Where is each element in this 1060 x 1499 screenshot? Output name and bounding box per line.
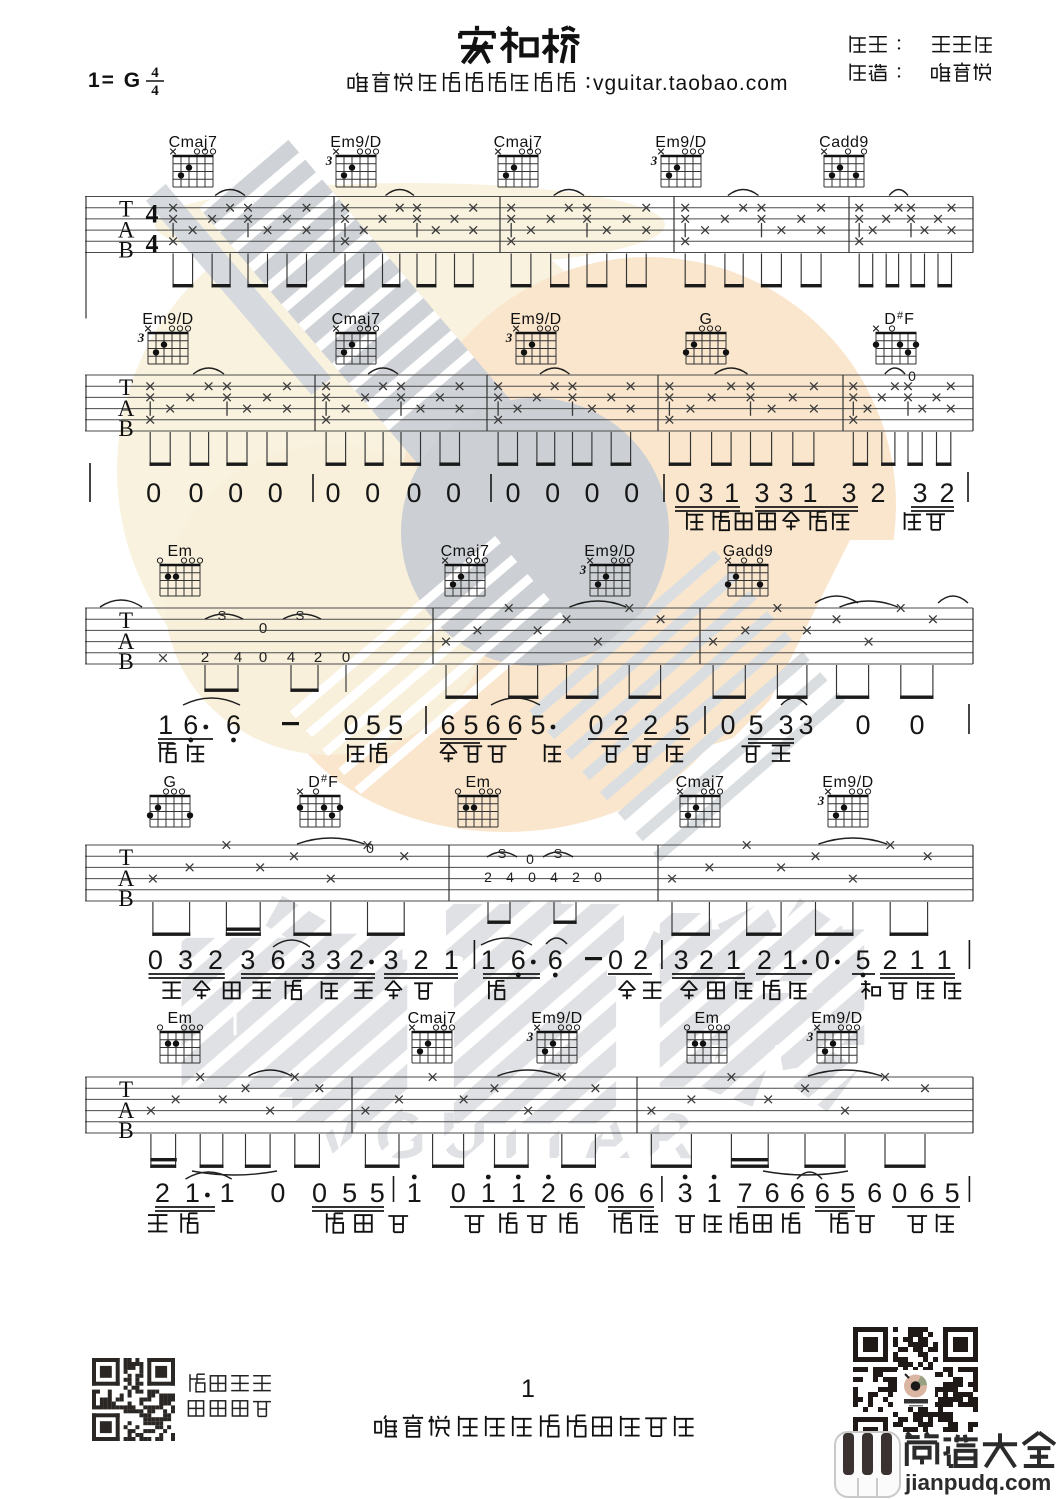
svg-text:Em9/D: Em9/D bbox=[531, 1010, 582, 1027]
svg-text:5: 5 bbox=[748, 710, 763, 740]
svg-text:Em: Em bbox=[168, 1010, 193, 1027]
svg-text:5: 5 bbox=[855, 945, 870, 975]
svg-text:5: 5 bbox=[388, 710, 403, 740]
svg-text:6: 6 bbox=[919, 1178, 934, 1208]
svg-text:Cmaj7: Cmaj7 bbox=[494, 134, 543, 151]
svg-text:3: 3 bbox=[579, 562, 587, 577]
svg-text:Em9/D: Em9/D bbox=[811, 1010, 862, 1027]
svg-text:0: 0 bbox=[815, 945, 830, 975]
svg-text:Cmaj7: Cmaj7 bbox=[408, 1010, 457, 1027]
svg-text:2: 2 bbox=[201, 649, 209, 666]
svg-text:1: 1 bbox=[481, 945, 496, 975]
svg-text:Em9/D: Em9/D bbox=[142, 311, 193, 328]
svg-text:D: D bbox=[308, 774, 320, 791]
svg-text:Em9/D: Em9/D bbox=[655, 134, 706, 151]
svg-text:5: 5 bbox=[370, 1178, 385, 1208]
svg-text:vguitar.taobao.com: vguitar.taobao.com bbox=[593, 72, 788, 95]
svg-text:1: 1 bbox=[444, 945, 459, 975]
svg-text:2: 2 bbox=[572, 869, 580, 885]
svg-text:1: 1 bbox=[707, 1178, 722, 1208]
svg-text:2: 2 bbox=[484, 869, 492, 885]
svg-text:0: 0 bbox=[720, 710, 735, 740]
svg-text:5: 5 bbox=[366, 710, 381, 740]
svg-text:1: 1 bbox=[726, 945, 741, 975]
svg-text:0: 0 bbox=[908, 368, 916, 384]
svg-text:1: 1 bbox=[910, 945, 925, 975]
svg-text:4: 4 bbox=[550, 869, 558, 885]
svg-text:3: 3 bbox=[798, 710, 813, 740]
svg-text:1: 1 bbox=[802, 478, 817, 508]
svg-text:6: 6 bbox=[507, 710, 522, 740]
svg-text:2: 2 bbox=[208, 945, 223, 975]
svg-text:Em9/D: Em9/D bbox=[822, 774, 873, 791]
svg-text:3: 3 bbox=[178, 945, 193, 975]
svg-text:4: 4 bbox=[151, 83, 159, 99]
svg-text:6: 6 bbox=[440, 710, 455, 740]
svg-text:3: 3 bbox=[817, 793, 825, 808]
svg-text:0: 0 bbox=[406, 478, 421, 508]
svg-text:Cmaj7: Cmaj7 bbox=[169, 134, 218, 151]
svg-text:S: S bbox=[296, 608, 305, 623]
svg-text:6: 6 bbox=[790, 1178, 805, 1208]
svg-text:1: 1 bbox=[937, 945, 952, 975]
svg-text:4: 4 bbox=[287, 649, 295, 666]
svg-text:6: 6 bbox=[183, 710, 198, 740]
svg-text:4: 4 bbox=[146, 230, 159, 259]
svg-text:0: 0 bbox=[268, 478, 283, 508]
svg-text:3: 3 bbox=[650, 153, 658, 168]
svg-text:2: 2 bbox=[699, 945, 714, 975]
svg-text:0: 0 bbox=[584, 478, 599, 508]
svg-text:1: 1 bbox=[511, 1178, 526, 1208]
svg-text:3: 3 bbox=[778, 478, 793, 508]
svg-text:3: 3 bbox=[674, 945, 689, 975]
svg-text:3: 3 bbox=[300, 945, 315, 975]
svg-text:0: 0 bbox=[343, 710, 358, 740]
svg-text:F: F bbox=[328, 774, 338, 791]
svg-text:6: 6 bbox=[270, 945, 285, 975]
svg-text:2: 2 bbox=[870, 478, 885, 508]
svg-text:3: 3 bbox=[778, 710, 793, 740]
svg-text:2: 2 bbox=[882, 945, 897, 975]
svg-text:2: 2 bbox=[613, 710, 628, 740]
svg-text:3: 3 bbox=[698, 478, 713, 508]
svg-text:5: 5 bbox=[840, 1178, 855, 1208]
svg-text:S: S bbox=[498, 846, 507, 861]
svg-text:4: 4 bbox=[146, 200, 159, 229]
svg-text:0: 0 bbox=[446, 478, 461, 508]
svg-text:3: 3 bbox=[754, 478, 769, 508]
svg-text:3: 3 bbox=[912, 478, 927, 508]
svg-text:0: 0 bbox=[259, 620, 267, 637]
svg-text:Em: Em bbox=[466, 774, 491, 791]
svg-text:2: 2 bbox=[757, 945, 772, 975]
svg-text:6: 6 bbox=[815, 1178, 830, 1208]
svg-text:B: B bbox=[118, 1118, 133, 1143]
svg-text:0: 0 bbox=[545, 478, 560, 508]
svg-text:Em: Em bbox=[168, 543, 193, 560]
svg-text:2: 2 bbox=[633, 945, 648, 975]
svg-text:6: 6 bbox=[765, 1178, 780, 1208]
svg-text:5: 5 bbox=[530, 710, 545, 740]
svg-text:1: 1 bbox=[782, 945, 797, 975]
svg-text:3: 3 bbox=[240, 945, 255, 975]
svg-text:0: 0 bbox=[259, 649, 267, 666]
svg-text:0: 0 bbox=[312, 1178, 327, 1208]
svg-text:4: 4 bbox=[151, 65, 159, 81]
svg-text:6: 6 bbox=[569, 1178, 584, 1208]
svg-text:3: 3 bbox=[678, 1178, 693, 1208]
svg-text:B: B bbox=[118, 238, 133, 263]
svg-text:0: 0 bbox=[342, 649, 350, 666]
svg-text:B: B bbox=[118, 416, 133, 441]
svg-text:7: 7 bbox=[737, 1178, 752, 1208]
svg-text:S: S bbox=[554, 846, 563, 861]
svg-text:Cmaj7: Cmaj7 bbox=[676, 774, 725, 791]
svg-text:2: 2 bbox=[643, 710, 658, 740]
svg-text:0: 0 bbox=[325, 478, 340, 508]
svg-text:3: 3 bbox=[505, 330, 513, 345]
svg-text:0: 0 bbox=[365, 478, 380, 508]
svg-text:2: 2 bbox=[413, 945, 428, 975]
svg-text:1: 1 bbox=[185, 1178, 200, 1208]
svg-text:3: 3 bbox=[326, 945, 341, 975]
svg-text:0: 0 bbox=[451, 1178, 466, 1208]
svg-text:0: 0 bbox=[188, 478, 203, 508]
svg-text:0: 0 bbox=[594, 869, 602, 885]
svg-text:6: 6 bbox=[867, 1178, 882, 1208]
svg-text:D: D bbox=[884, 311, 896, 328]
svg-text:1: 1 bbox=[407, 1178, 422, 1208]
svg-text:3: 3 bbox=[137, 330, 145, 345]
svg-text:Cmaj7: Cmaj7 bbox=[332, 311, 381, 328]
svg-text:B: B bbox=[118, 886, 133, 911]
svg-text:0: 0 bbox=[366, 840, 374, 856]
svg-text:0: 0 bbox=[608, 945, 623, 975]
svg-text:1: 1 bbox=[158, 710, 173, 740]
svg-text:0: 0 bbox=[228, 478, 243, 508]
svg-text:3: 3 bbox=[383, 945, 398, 975]
svg-text:Em9/D: Em9/D bbox=[584, 543, 635, 560]
svg-text:0: 0 bbox=[505, 478, 520, 508]
svg-text:6: 6 bbox=[610, 1178, 625, 1208]
svg-text:2: 2 bbox=[314, 649, 322, 666]
svg-text:0: 0 bbox=[892, 1178, 907, 1208]
svg-text:Cadd9: Cadd9 bbox=[819, 134, 869, 151]
svg-text:0: 0 bbox=[624, 478, 639, 508]
svg-text:6: 6 bbox=[511, 945, 526, 975]
svg-text:F: F bbox=[904, 311, 914, 328]
svg-text:1= G: 1= G bbox=[88, 69, 142, 92]
svg-text:0: 0 bbox=[526, 851, 534, 867]
svg-text:6: 6 bbox=[639, 1178, 654, 1208]
svg-text:1: 1 bbox=[521, 1375, 535, 1403]
svg-text:0: 0 bbox=[146, 478, 161, 508]
svg-text:1: 1 bbox=[481, 1178, 496, 1208]
svg-text:5: 5 bbox=[463, 710, 478, 740]
svg-text:0: 0 bbox=[270, 1178, 285, 1208]
svg-text:Em9/D: Em9/D bbox=[510, 311, 561, 328]
svg-text:0: 0 bbox=[588, 710, 603, 740]
svg-text:0: 0 bbox=[148, 945, 163, 975]
svg-text:0: 0 bbox=[909, 710, 924, 740]
svg-text:B: B bbox=[118, 649, 133, 674]
svg-text:S: S bbox=[218, 608, 227, 623]
svg-text:4: 4 bbox=[506, 869, 514, 885]
svg-text:6: 6 bbox=[548, 945, 563, 975]
svg-text:5: 5 bbox=[945, 1178, 960, 1208]
svg-text:2: 2 bbox=[155, 1178, 170, 1208]
svg-text:2: 2 bbox=[939, 478, 954, 508]
svg-text:0: 0 bbox=[528, 869, 536, 885]
svg-text:3: 3 bbox=[806, 1029, 814, 1044]
svg-text:#: # bbox=[897, 310, 904, 322]
svg-text:2: 2 bbox=[349, 945, 364, 975]
svg-text:jianpudq.com: jianpudq.com bbox=[904, 1470, 1051, 1495]
svg-text:6: 6 bbox=[485, 710, 500, 740]
svg-text:3: 3 bbox=[526, 1029, 534, 1044]
svg-text:#: # bbox=[321, 773, 328, 785]
svg-text:6: 6 bbox=[226, 710, 241, 740]
svg-text:Em: Em bbox=[695, 1010, 720, 1027]
svg-text:0: 0 bbox=[855, 710, 870, 740]
svg-text:3: 3 bbox=[841, 478, 856, 508]
svg-text:3: 3 bbox=[325, 153, 333, 168]
svg-text:0: 0 bbox=[675, 478, 690, 508]
svg-text:Cmaj7: Cmaj7 bbox=[441, 543, 490, 560]
svg-text:5: 5 bbox=[674, 710, 689, 740]
svg-text:0: 0 bbox=[594, 1178, 609, 1208]
svg-text:5: 5 bbox=[342, 1178, 357, 1208]
svg-text:4: 4 bbox=[234, 649, 242, 666]
svg-text:Em9/D: Em9/D bbox=[330, 134, 381, 151]
svg-text:1: 1 bbox=[724, 478, 739, 508]
svg-text:1: 1 bbox=[220, 1178, 235, 1208]
svg-text:2: 2 bbox=[541, 1178, 556, 1208]
svg-text:VGUITAR: VGUITAR bbox=[317, 1098, 707, 1172]
